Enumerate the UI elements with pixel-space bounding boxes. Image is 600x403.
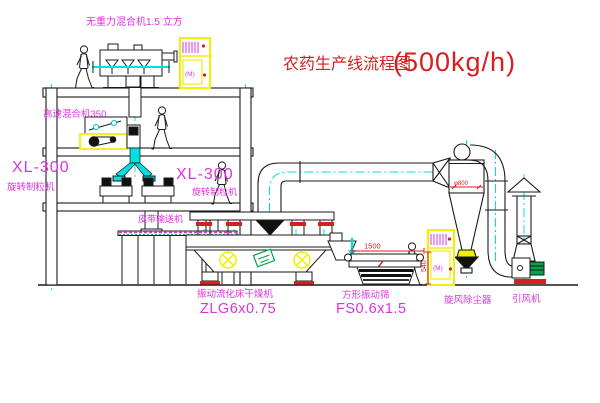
granulator-left xyxy=(97,176,135,203)
fluid-bed-dryer xyxy=(186,212,334,285)
high-speed-mixer-label: 高速混合机350 xyxy=(43,108,106,120)
process-flow-diagram: (M) xyxy=(0,0,600,403)
screen-height-label: 540 xyxy=(421,260,428,272)
screen-model-label: FS0.6x1.5 xyxy=(336,301,407,317)
discharge-valve xyxy=(457,250,476,257)
indicator-dot xyxy=(449,267,452,270)
belt-conveyor-label: 皮带输送机 xyxy=(138,213,183,224)
dryer-name-label: 振动流化床干燥机 xyxy=(197,288,274,300)
fan-label: 引风机 xyxy=(512,293,541,305)
gravity-free-mixer xyxy=(92,44,177,117)
screen-name-label: 方形振动筛 xyxy=(342,289,390,301)
granulator-left-name-label: 旋转制粒机 xyxy=(7,181,55,193)
diagram-svg: (M) xyxy=(0,0,600,403)
indicator-dot xyxy=(202,44,205,47)
dryer-model-label: ZLG6x0.75 xyxy=(200,301,276,317)
indicator-dot xyxy=(203,73,206,76)
diagram-capacity: (500kg/h) xyxy=(393,47,516,77)
control-cabinet-2: (M) xyxy=(428,230,454,285)
motor-symbol: (M) xyxy=(433,265,443,272)
duct-dryer-to-cyclone xyxy=(258,161,433,212)
granulator-left-model-label: XL-300 xyxy=(12,159,70,176)
cyclone-dimension-label: φ800 xyxy=(454,181,469,187)
granulator-right-name-label: 旋转制粒机 xyxy=(192,186,237,197)
granulator-right-model-label: XL-300 xyxy=(176,166,234,183)
feed-funnel xyxy=(256,220,284,235)
indicator-dot xyxy=(448,237,451,240)
induced-draft-fan xyxy=(512,258,546,284)
control-cabinet-1: (M) xyxy=(180,38,210,88)
motor-symbol: (M) xyxy=(185,71,195,78)
gravity-mixer-label: 无重力混合机1.5 立方 xyxy=(86,15,183,28)
exhaust-stack xyxy=(508,178,540,261)
fan-motor xyxy=(530,262,544,275)
screen-length-label: 1500 xyxy=(364,242,381,251)
high-speed-mixer xyxy=(80,117,140,149)
worker-figure-floor2 xyxy=(152,107,173,149)
diagram-title: 农药生产线流程图 xyxy=(283,55,411,73)
granulator-right xyxy=(139,176,177,203)
cyclone-label: 旋风除尘器 xyxy=(444,294,492,306)
worker-figure-roof xyxy=(74,46,95,88)
